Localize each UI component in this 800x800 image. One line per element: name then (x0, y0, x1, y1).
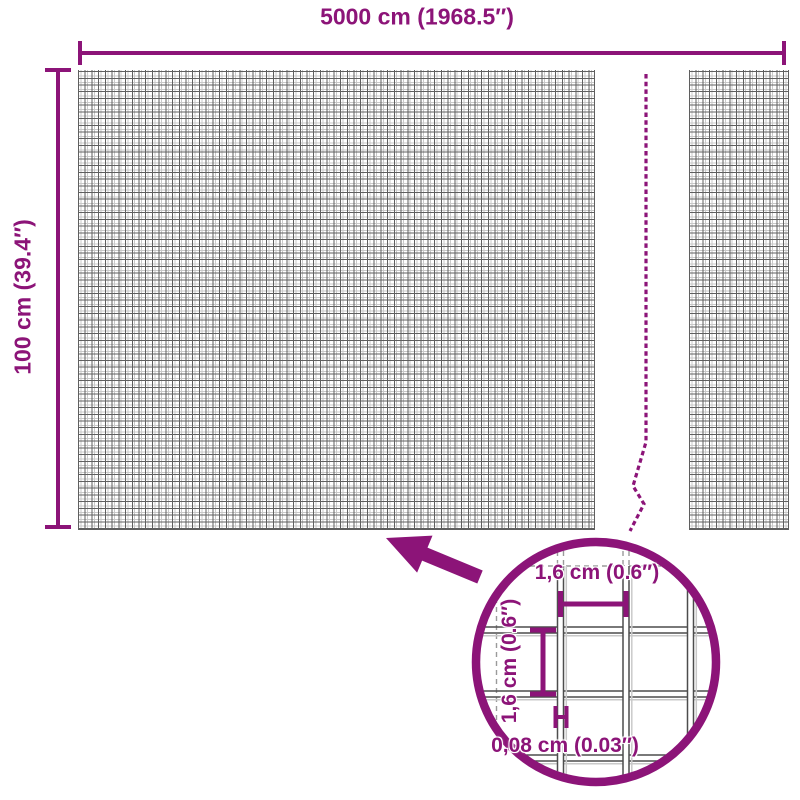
diagram-overlay (0, 0, 800, 800)
width-dimension-label: 5000 cm (1968.5″) (320, 4, 514, 31)
product-dimension-diagram: 5000 cm (1968.5″) 100 cm (39.4″) 1,6 cm … (0, 0, 800, 800)
zoom-arrow-icon (386, 536, 483, 584)
detail-mesh-height-label: 1,6 cm (0.6″) (498, 599, 522, 723)
height-dimension-label: 100 cm (39.4″) (10, 219, 37, 375)
detail-mesh-width-label: 1,6 cm (0.6″) (535, 561, 659, 585)
height-dimension-line (45, 70, 71, 527)
width-dimension-line (80, 41, 784, 65)
mesh-break-line-icon (630, 74, 646, 531)
detail-wire-thickness-label: 0,08 cm (0.03″) (491, 734, 639, 758)
